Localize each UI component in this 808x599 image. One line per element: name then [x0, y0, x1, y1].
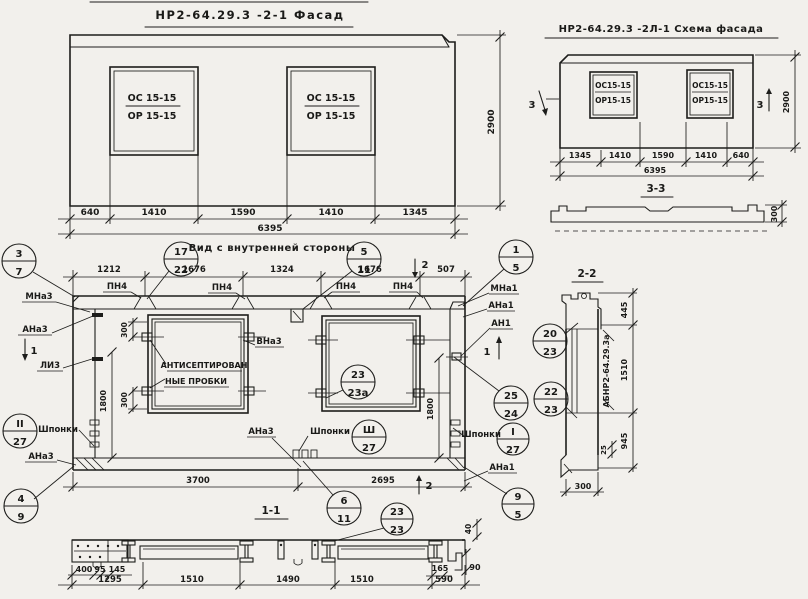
svg-text:23: 23	[351, 370, 365, 381]
svg-text:23: 23	[544, 405, 558, 416]
callout-4-9: 4 9	[4, 466, 74, 523]
facade-title: НР2-64.29.3 -2-1 Фасад	[155, 8, 344, 22]
inner-cut2-bottom-label: 2	[426, 481, 433, 492]
strip-dim-40: 40	[464, 524, 473, 534]
inner-title: Вид с внутренней стороны	[189, 243, 356, 254]
svg-text:20: 20	[543, 329, 557, 340]
svg-text:9: 9	[18, 512, 25, 523]
svg-text:23а: 23а	[348, 388, 369, 399]
facade-window1-mark-top: ОС 15-15	[128, 93, 177, 104]
inner-cut2-top-label: 2	[422, 260, 429, 271]
svg-text:II: II	[16, 419, 23, 430]
svg-text:17: 17	[174, 247, 188, 258]
inner-cut1-left-label: 1	[31, 346, 38, 357]
strip-sill-2	[338, 546, 428, 559]
svg-text:27: 27	[13, 437, 27, 448]
strip-mid-channels	[278, 541, 318, 565]
svg-text:3: 3	[16, 249, 23, 260]
inner-left-labels: МНа3 АНа3 ЛИ3 Шпонки АНа3	[18, 292, 94, 465]
section-2-2: 2-2 АБНР2-64.29.3а 445 1510 945 25 300	[560, 268, 638, 497]
dim-300-top-text: 300	[120, 322, 129, 338]
dim-1800-left: 1800	[99, 348, 117, 463]
svg-text:23: 23	[390, 507, 404, 518]
strip-dim-1510a: 1510	[180, 575, 204, 585]
section-3-3-profile	[551, 205, 764, 222]
facade-dim-640: 640	[81, 208, 100, 218]
strip-dim-1295: 1295	[98, 575, 122, 585]
callout-1-5: 1 5	[463, 240, 533, 306]
shponka-keys-right	[451, 420, 460, 447]
svg-text:1: 1	[513, 245, 520, 256]
strip-sill-1	[140, 546, 238, 559]
scheme-cut-mark-right: 3	[757, 88, 772, 111]
loop-label-1: ПН4	[107, 282, 127, 292]
section-2-2-title: 2-2	[578, 268, 597, 280]
section-2-2-mark: АБНР2-64.29.3а	[602, 334, 611, 407]
facade-dim-total: 6395	[257, 224, 282, 234]
svg-text:22: 22	[174, 265, 188, 276]
dim-300-s22: 300	[575, 482, 592, 491]
strip-left-block	[72, 540, 128, 568]
scheme-dim-row: 1345 1410 1590 1410 640	[550, 151, 764, 167]
inner-cut1-right-label: 1	[484, 347, 491, 358]
anchor-mark-ana3	[92, 313, 103, 317]
dim-300-bottom-text: 300	[120, 392, 129, 408]
facade-window2-mark-bottom: ОР 15-15	[307, 111, 356, 122]
svg-text:5: 5	[513, 263, 520, 274]
inner-dim-3700: 3700	[186, 476, 210, 486]
scheme-dim-total: 6395	[644, 166, 667, 175]
inner-bottom-extensions	[73, 468, 465, 491]
svg-text:11: 11	[357, 265, 371, 276]
dim-25: 25	[600, 445, 608, 455]
scheme-window1-mark-top: ОС15-15	[595, 81, 631, 90]
scheme-window2-mark-top: ОС15-15	[692, 81, 728, 90]
strip-dim-165: 165	[432, 564, 449, 573]
scheme-dim-640: 640	[733, 151, 750, 160]
svg-text:5: 5	[361, 247, 368, 258]
scheme-dim-1410b: 1410	[695, 151, 718, 160]
section-2-2-foot	[561, 455, 598, 477]
scheme-window-1: ОС15-15 ОР15-15	[590, 72, 637, 118]
dim-300-top: 300	[120, 318, 147, 342]
facade-window1-mark-bottom: ОР 15-15	[128, 111, 177, 122]
svg-text:27: 27	[362, 443, 376, 454]
label-ana3-top: АНа3	[22, 325, 47, 335]
strip-main-dims: 1295 1510 1490 1510 590	[58, 575, 480, 590]
plug-note-line2: НЫЕ ПРОБКИ	[165, 377, 227, 386]
scheme-window-2: ОС15-15 ОР15-15	[687, 70, 733, 118]
svg-text:9: 9	[515, 492, 522, 503]
strip-dim-95: 95	[94, 565, 106, 574]
strip-dim-400: 400	[76, 565, 93, 574]
loop-label-3: ПН4	[336, 282, 356, 292]
section-1-1-label: 1-1	[262, 505, 281, 517]
label-li3: ЛИ3	[40, 361, 60, 371]
svg-text:22: 22	[544, 387, 558, 398]
facade-dim-1345: 1345	[402, 208, 427, 218]
svg-text:4: 4	[18, 494, 25, 505]
label-ana3-bottom: АНа3	[28, 452, 53, 462]
section-2-2-thickness-dim: 300	[560, 472, 604, 497]
label-ana1-top: АНа1	[488, 301, 513, 311]
facade-window-2: ОС 15-15 ОР 15-15	[287, 67, 375, 155]
scheme-cut-label-right: 3	[757, 100, 764, 111]
svg-text:I: I	[511, 427, 515, 438]
scheme-window1-mark-bottom: ОР15-15	[595, 96, 631, 105]
section-2-2-mark-group: АБНР2-64.29.3а	[602, 330, 614, 410]
facade-window2-mark-top: ОС 15-15	[307, 93, 356, 104]
callout-II-27: II 27	[3, 414, 37, 448]
dim-445: 445	[620, 301, 629, 318]
callout-III-27: Ш 27	[352, 420, 386, 454]
loop-label-4: ПН4	[393, 282, 413, 292]
inner-cut1-right: 1	[484, 336, 502, 359]
section-2-2-cap	[562, 293, 601, 329]
dim-945: 945	[620, 432, 629, 449]
callout-23-23a: 23 23а	[326, 365, 375, 399]
label-shponki-left: Шпонки	[38, 425, 78, 435]
inner-cut1-left: 1	[22, 339, 38, 361]
strip-dim-1490: 1490	[276, 575, 300, 585]
label-an1: АН1	[491, 319, 511, 329]
facade-dim-row: 640 1410 1590 1410 1345	[58, 208, 468, 224]
label-shponki-mid: Шпонки	[310, 427, 350, 437]
section-1-1-label-group: 1-1	[255, 505, 288, 519]
svg-text:23: 23	[390, 525, 404, 536]
shponka-keys-middle	[293, 450, 317, 458]
strip-dim-145: 145	[109, 565, 126, 574]
plug-note-line1: АНТИСЕПТИРОВАН	[161, 361, 248, 370]
blueprint-sheet: НР2-64.29.3 -2-1 Фасад ОС 15-15 ОР 15-15…	[0, 0, 808, 599]
svg-text:5: 5	[515, 510, 522, 521]
scheme-title: НР2-64.29.3 -2Л-1 Схема фасада	[559, 23, 764, 35]
facade-dim-1410b: 1410	[318, 208, 343, 218]
facade-window-1: ОС 15-15 ОР 15-15	[110, 67, 198, 155]
svg-text:25: 25	[504, 391, 518, 402]
inner-dim-507: 507	[437, 265, 455, 275]
facade-view: НР2-64.29.3 -2-1 Фасад ОС 15-15 ОР 15-15…	[58, 8, 506, 239]
section-3-3: 3-3 300	[551, 183, 787, 231]
dim-1510: 1510	[620, 358, 629, 381]
facade-dim-1410a: 1410	[141, 208, 166, 218]
loop-label-2: ПН4	[212, 283, 232, 293]
facade-dim-height: 2900	[487, 109, 497, 134]
inner-dim-1324: 1324	[270, 265, 294, 275]
scheme-dim-1590: 1590	[652, 151, 675, 160]
svg-text:27: 27	[506, 445, 520, 456]
strip-dim-90: 90	[469, 563, 481, 572]
scheme-dim-1410a: 1410	[609, 151, 632, 160]
label-ana3-mid: АНа3	[248, 427, 273, 437]
label-mna1: МНа1	[490, 284, 517, 294]
window2-plugs	[316, 336, 424, 397]
facade-height-dim: 2900	[487, 30, 505, 211]
svg-text:24: 24	[504, 409, 518, 420]
label-mna3: МНа3	[25, 292, 52, 302]
scheme-height-dim: 2900	[782, 50, 800, 153]
dim-1800-right: 1800	[426, 354, 444, 463]
dim-1800-right-text: 1800	[426, 397, 435, 420]
svg-text:6: 6	[341, 496, 348, 507]
scheme-dim-1345: 1345	[569, 151, 592, 160]
inner-bottom-dim-row: 3700 2695	[63, 476, 472, 492]
dim-300-bottom: 300	[120, 387, 147, 414]
strip-dim-590: 590	[435, 575, 453, 585]
strip-dim-1510b: 1510	[350, 575, 374, 585]
scheme-cut-label-left: 3	[529, 100, 536, 111]
anchor-mark-li3	[92, 357, 103, 361]
inner-cut2-bottom: 2	[416, 475, 433, 494]
inner-dim-2695: 2695	[371, 476, 395, 486]
corner-fitting-right	[450, 302, 465, 309]
inner-view: Вид с внутренней стороны 1212 1676 1324 …	[18, 243, 519, 519]
strip-section: 400 95 145 1295 1510 1490 1510 590 165 9…	[58, 519, 482, 590]
callout-20-23: 20 23	[533, 323, 578, 358]
facade-dim-1590: 1590	[230, 208, 255, 218]
scheme-cut-mark-left: 3	[529, 91, 559, 116]
svg-text:7: 7	[16, 267, 23, 278]
facade-extension-lines	[70, 35, 506, 239]
lifting-loop-seats	[134, 297, 431, 309]
callout-I-27: I 27	[497, 423, 529, 456]
inner-dim-1212: 1212	[97, 265, 121, 275]
label-ana1-bottom: АНа1	[489, 463, 514, 473]
inner-top-dim-row: 1212 1676 1324 1676 507	[63, 265, 472, 282]
svg-text:Ш: Ш	[363, 425, 375, 436]
bottom-band-hatch	[76, 458, 464, 470]
label-shponki-right: Шпонки	[461, 430, 501, 440]
scheme-view: НР2-64.29.3 -2Л-1 Схема фасада ОС15-15 О…	[529, 23, 801, 231]
strip-right-end	[448, 540, 465, 570]
section-3-3-label: 3-3	[647, 183, 666, 195]
scheme-dim-height: 2900	[782, 90, 791, 113]
scheme-window2-mark-bottom: ОР15-15	[692, 96, 728, 105]
callout-3-7: 3 7	[2, 244, 75, 297]
facade-total-dim: 6395	[58, 224, 468, 239]
blueprint-canvas: НР2-64.29.3 -2-1 Фасад ОС 15-15 ОР 15-15…	[0, 0, 808, 599]
label-vna3: ВНа3	[256, 337, 281, 347]
section-3-3-thickness: 300	[770, 205, 779, 222]
svg-text:23: 23	[543, 347, 557, 358]
svg-text:11: 11	[337, 514, 351, 525]
callout-9-5: 9 5	[464, 467, 534, 521]
inner-window-1: АНТИСЕПТИРОВАН НЫЕ ПРОБКИ	[132, 315, 266, 413]
inner-mid-labels: ВНа3 АНа3 Шпонки	[243, 337, 350, 467]
scheme-total-dim: 6395	[550, 166, 764, 181]
dim-1800-left-text: 1800	[99, 389, 108, 412]
